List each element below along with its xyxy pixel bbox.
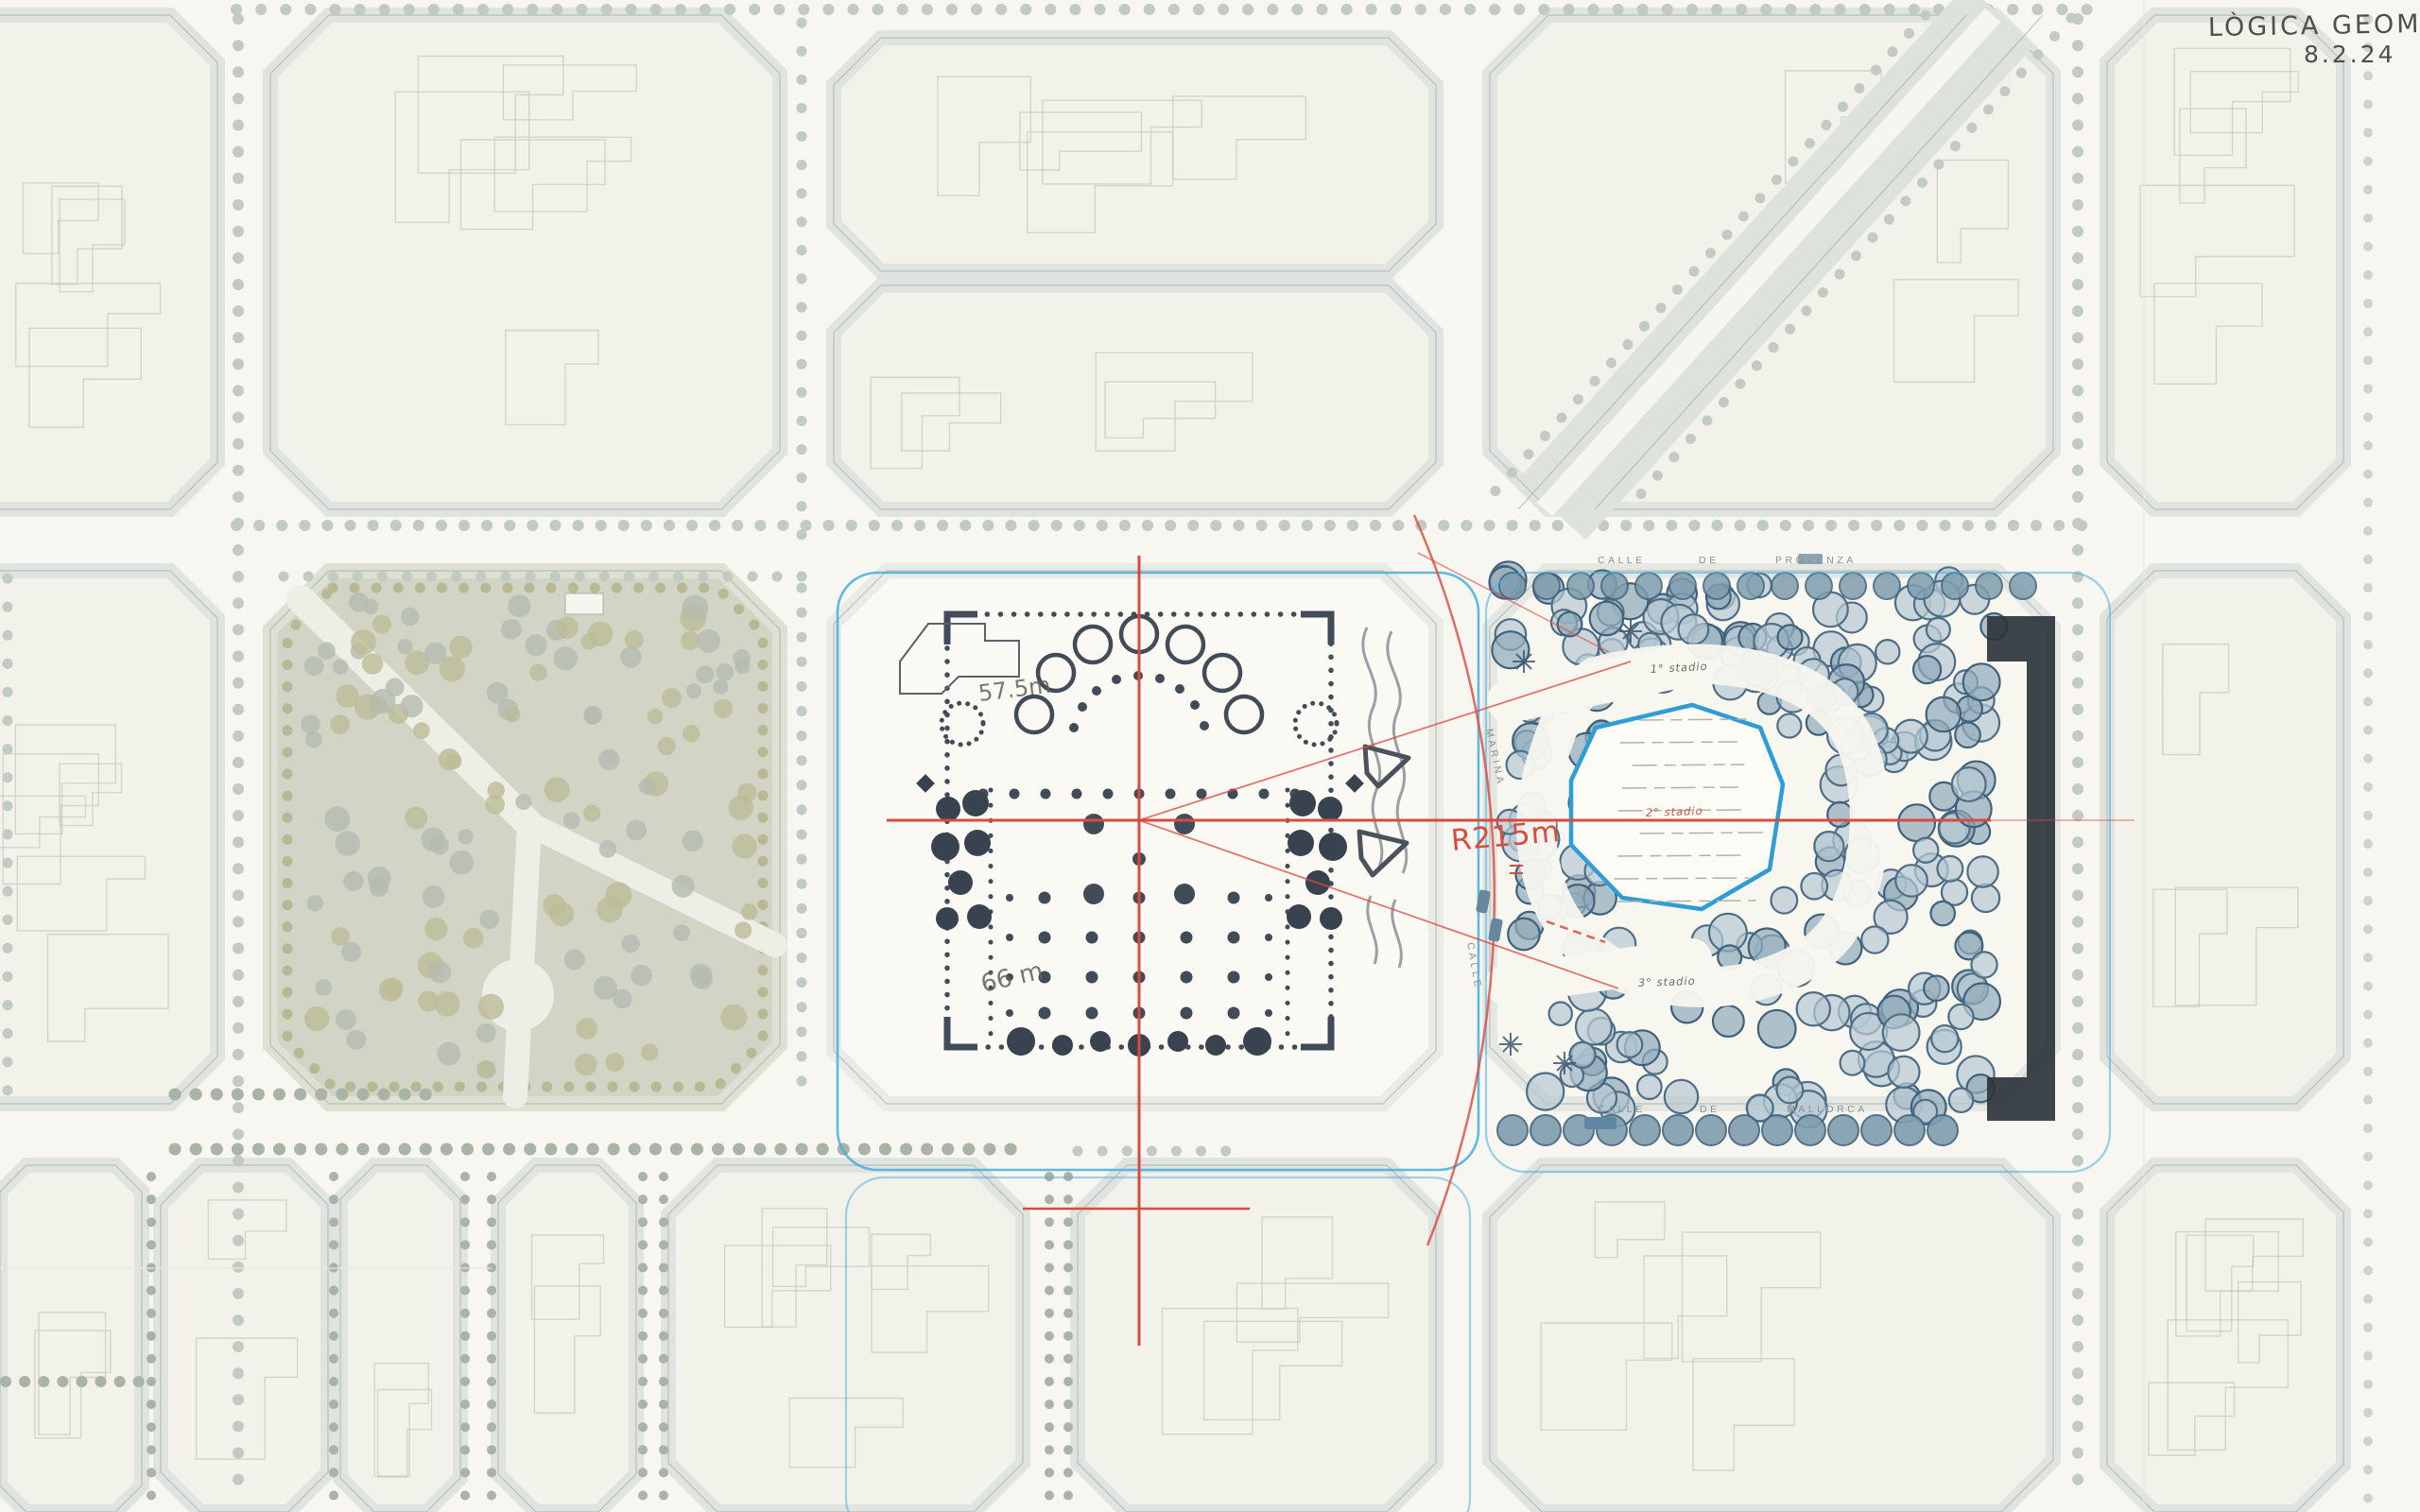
park-tree — [423, 885, 445, 908]
park-tree — [626, 820, 647, 841]
site-plan-sheet: LÒGICA GEOMETRICA 8.2.24 R215m 57.5m 66 … — [0, 0, 2420, 1512]
plaza-tree — [1931, 1025, 1958, 1052]
park-tree — [583, 805, 600, 822]
park-tree — [405, 807, 427, 830]
plaza-tree — [1533, 573, 1560, 599]
plaza-tree — [1549, 1003, 1572, 1025]
plaza-tree — [1558, 612, 1582, 637]
park-tree — [553, 646, 577, 670]
park-tree — [458, 830, 474, 845]
park-tree — [304, 657, 324, 677]
park-tree — [346, 1030, 366, 1050]
park-tree — [606, 1053, 625, 1072]
park-tree — [476, 1060, 494, 1078]
park-tree — [735, 659, 750, 674]
plaza-tree — [1679, 614, 1709, 644]
park-tree — [501, 619, 522, 640]
plaza-tree — [1576, 1009, 1612, 1045]
stage-3-label: 3° stadio — [1638, 974, 1696, 989]
park-tree — [564, 949, 585, 970]
pencil-note-line — [1620, 742, 1738, 743]
plaza-tree — [1955, 722, 1980, 747]
plaza-tree — [1806, 573, 1832, 599]
pencil-note-line — [1640, 833, 1766, 833]
plaza-tree — [1590, 602, 1623, 635]
park-tree — [658, 737, 676, 755]
sheet-title: LÒGICA GEOMETRICA — [2208, 7, 2420, 43]
park-tree — [696, 665, 714, 683]
plaza-tree — [1913, 838, 1938, 863]
park-tree — [331, 927, 350, 946]
park-tree — [413, 722, 430, 739]
park-tree — [508, 594, 530, 617]
park-tree — [400, 695, 423, 717]
park-tree — [307, 895, 324, 912]
city-block — [0, 1165, 142, 1512]
plaza-tree — [1795, 1115, 1825, 1145]
park-tree — [543, 894, 565, 917]
plaza-tree — [1771, 887, 1797, 914]
park-tree — [397, 639, 412, 654]
plaza-tree — [1874, 573, 1900, 599]
park-tree — [363, 599, 378, 614]
park-tree — [476, 1023, 496, 1043]
park-tree — [424, 643, 446, 664]
park-tree — [716, 663, 734, 681]
plaza-tree — [1875, 640, 1899, 663]
plaza-tree — [1713, 1005, 1744, 1037]
park-tree — [351, 629, 376, 655]
park-tree — [487, 682, 509, 704]
plaza-tree — [1861, 926, 1888, 953]
park-tree — [683, 831, 703, 851]
plaza-tree — [1527, 1074, 1564, 1110]
city-block — [1490, 1165, 2053, 1512]
park-tree — [662, 688, 682, 708]
park-tree — [488, 782, 505, 799]
pencil-note-line — [1617, 901, 1755, 902]
park-pavilion — [565, 593, 603, 614]
park-tree — [424, 918, 447, 940]
plaza-tree — [1801, 873, 1827, 900]
plaza-tree — [1630, 1115, 1660, 1145]
plaza-tree — [1696, 1115, 1726, 1145]
pencil-note-line — [1622, 787, 1738, 788]
pencil-note-line — [1638, 719, 1746, 720]
park-tree — [697, 629, 720, 653]
park-tree — [336, 832, 360, 856]
park-tree — [450, 850, 475, 875]
plaza-tree — [1758, 1010, 1796, 1048]
city-block — [2107, 1165, 2343, 1512]
park-tree — [713, 679, 728, 695]
park-tree — [598, 749, 619, 770]
street-label-provenza-3: PROVENZA — [1775, 555, 1857, 566]
park-tree — [463, 928, 484, 949]
plaza-tree — [1963, 663, 2000, 700]
park-tree — [341, 942, 361, 962]
street-label-mallorca-2: DE — [1700, 1104, 1720, 1115]
plaza-tree — [1703, 573, 1730, 599]
park-tree — [733, 834, 757, 859]
park-tree — [631, 965, 652, 987]
vehicle-marker — [1584, 1117, 1616, 1129]
plaza-tree — [1895, 865, 1927, 896]
park-tree — [741, 903, 757, 919]
city-block — [0, 15, 217, 509]
plaza-tree — [1778, 625, 1803, 649]
park-tree — [625, 630, 644, 649]
park-tree — [379, 978, 403, 1002]
park-tree — [418, 990, 439, 1011]
plaza-tree — [1908, 573, 1934, 599]
plaza-tree — [1737, 573, 1764, 599]
plaza-tree — [1976, 573, 2002, 599]
park-tree — [691, 968, 713, 989]
park-tree — [735, 921, 752, 938]
plaza-tree — [1637, 1074, 1662, 1099]
plaza-tree — [1861, 1115, 1892, 1145]
plaza-tree — [1777, 1077, 1804, 1104]
plaza-tree — [1937, 856, 1962, 882]
park-tree — [478, 994, 504, 1020]
street-label-mallorca-1: CALLE — [1598, 1104, 1646, 1115]
park-tree — [305, 731, 322, 748]
plaza-tree — [1927, 1115, 1958, 1145]
park-tree — [445, 753, 461, 769]
plaza-tree — [1530, 1115, 1561, 1145]
park-tree — [544, 777, 570, 802]
plaza-tree — [1841, 1051, 1865, 1075]
park-tree — [333, 660, 348, 675]
plaza-tree — [1772, 573, 1798, 599]
plaza-tree — [1924, 976, 1948, 1001]
park-tree — [594, 976, 617, 1000]
park-tree — [587, 621, 613, 646]
park-tree — [318, 643, 336, 661]
park-tree — [556, 616, 579, 639]
park-tree — [368, 867, 391, 890]
plaza-tree — [1827, 802, 1852, 827]
plaza-tree — [1617, 1032, 1643, 1057]
city-block — [498, 1165, 636, 1512]
site-plan-drawing: LÒGICA GEOMETRICA 8.2.24 R215m 57.5m 66 … — [0, 0, 2420, 1512]
park-tree — [620, 646, 641, 667]
park-tree — [576, 1018, 597, 1039]
plaza-tree — [1898, 804, 1935, 841]
plaza-tree — [1952, 767, 1986, 801]
park-tree — [599, 840, 617, 858]
park-tree — [729, 796, 753, 820]
park-tree — [673, 924, 690, 941]
park-tree — [401, 608, 420, 627]
street-label-mallorca-3: MALLORCA — [1787, 1104, 1868, 1115]
park-tree — [563, 812, 580, 829]
park-tree — [437, 1042, 460, 1066]
city-block — [834, 38, 1436, 271]
park-tree — [336, 684, 358, 707]
plaza-tree — [1828, 1115, 1858, 1145]
plaza-tree — [1663, 1115, 1693, 1145]
park-tree — [641, 1043, 658, 1060]
street-label-provenza-1: CALLE — [1598, 555, 1646, 566]
plaza-tree — [1762, 1115, 1792, 1145]
city-block — [2107, 571, 2343, 1104]
park-tree — [330, 714, 350, 734]
park-tree — [315, 979, 332, 996]
park-tree — [605, 882, 631, 908]
park-tree — [671, 875, 694, 898]
plaza-tree — [1567, 573, 1594, 599]
plaza-tree — [1942, 573, 1968, 599]
park-tree — [575, 1054, 597, 1076]
park-tree — [686, 683, 701, 698]
park-tree — [583, 706, 602, 725]
park-tree — [343, 871, 363, 891]
park-tree — [505, 707, 521, 723]
plaza-tree — [1948, 1005, 1973, 1029]
park-tree — [449, 636, 472, 659]
park-tree — [428, 961, 451, 984]
city-block — [2107, 15, 2343, 509]
sheet-date: 8.2.24 — [2304, 41, 2396, 68]
plaza-tree — [1967, 856, 1997, 886]
city-block — [1078, 1165, 1436, 1512]
plaza-tree — [1883, 1014, 1920, 1051]
park-tree — [683, 594, 709, 621]
city-block — [340, 1165, 460, 1512]
park-tree — [372, 615, 391, 634]
plaza-tree — [1840, 573, 1866, 599]
stage-2-label: 2° stadio — [1646, 804, 1703, 819]
plaza-tree — [1894, 720, 1927, 753]
city-block — [834, 285, 1436, 509]
park-tree — [362, 653, 383, 674]
park-tree — [515, 794, 531, 810]
city-block — [0, 571, 217, 1104]
plaza-tree — [1927, 618, 1950, 642]
plaza-tree — [1669, 573, 1696, 599]
street-label-provenza-2: DE — [1699, 555, 1720, 566]
park-tree — [621, 935, 639, 953]
pencil-note-line — [1614, 878, 1749, 879]
plaza-tree — [1777, 713, 1801, 737]
plaza-tree — [1497, 1115, 1528, 1145]
plaza-tree — [2010, 573, 2036, 599]
park-tree — [648, 709, 664, 725]
park-tree — [529, 663, 547, 681]
park-tree — [421, 827, 445, 851]
park-tree — [526, 634, 547, 656]
plaza-tree — [1814, 832, 1843, 861]
plaza-tree — [1729, 1115, 1759, 1145]
park-tree — [301, 714, 320, 734]
park-tree — [324, 806, 350, 832]
plaza-tree — [1972, 885, 1999, 912]
park-tree — [683, 725, 700, 742]
plaza-tree — [1499, 573, 1526, 599]
plaza-tree — [1601, 573, 1628, 599]
plaza-tree — [1635, 573, 1662, 599]
park-tree — [639, 778, 656, 795]
park-tree — [336, 1009, 356, 1030]
pencil-note-line — [1617, 855, 1742, 856]
park-tree — [714, 699, 733, 718]
plaza-tree — [1797, 992, 1830, 1025]
city-blocks-layer — [0, 15, 2343, 1512]
park-tree — [479, 909, 499, 929]
plaza-tree — [1508, 919, 1539, 950]
park-tree — [720, 1005, 747, 1031]
plaza-tree — [1971, 952, 1996, 977]
plaza-tree — [1930, 902, 1954, 925]
plaza-tree — [1894, 1115, 1925, 1145]
plaza-tree — [1927, 697, 1961, 731]
city-block — [270, 15, 780, 509]
plaza-tree — [1665, 1080, 1698, 1113]
plaza-tree — [1888, 1057, 1919, 1088]
plaza-tree — [1949, 1089, 1973, 1112]
park-tree — [304, 1006, 329, 1031]
plaza-tree — [1913, 656, 1941, 683]
park-tree — [371, 689, 395, 713]
